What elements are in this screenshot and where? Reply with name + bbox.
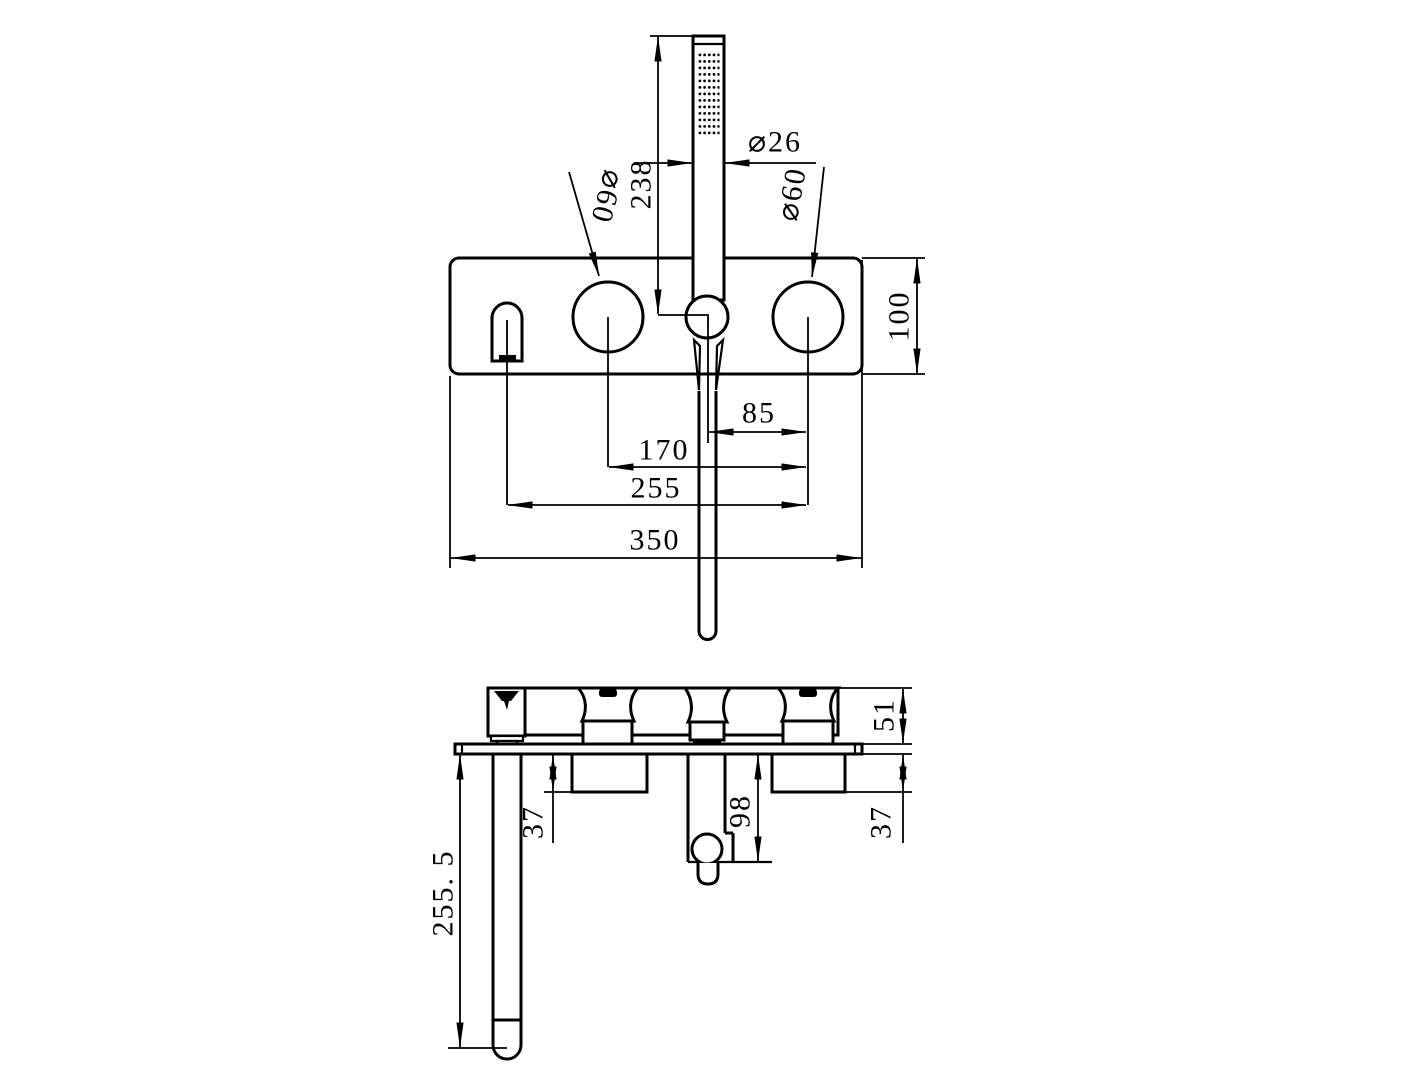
holder-circle xyxy=(686,296,728,338)
spray-face-dots xyxy=(698,52,720,136)
dim-255: 255 xyxy=(508,472,806,506)
right-handle-mark xyxy=(799,689,817,697)
dim-255-5: 255. 5 xyxy=(427,755,461,1047)
elbow-ball-joint xyxy=(692,834,722,864)
dim-37-right: 37 xyxy=(865,755,904,839)
holder-profile xyxy=(685,688,730,722)
dim-98: 98 xyxy=(724,755,759,861)
dim-phi26-label: ⌀26 xyxy=(748,126,802,159)
technical-drawing: 238 ⌀26 ⌀60 ⌀60 100 85 170 255 xyxy=(0,0,1408,1088)
dim-170-label: 170 xyxy=(639,434,690,467)
elbow-hose-connector xyxy=(698,863,718,884)
dim-350-label: 350 xyxy=(630,524,681,557)
profile-view xyxy=(455,688,862,1059)
spout-tube xyxy=(493,754,521,1059)
left-handle-base xyxy=(583,721,632,744)
dim-98-label: 98 xyxy=(724,794,757,828)
dim-350: 350 xyxy=(451,524,861,559)
dim-100-label: 100 xyxy=(883,291,916,342)
holder-base xyxy=(690,722,724,740)
dim-238-label: 238 xyxy=(625,159,658,210)
dim-51: 51 xyxy=(868,689,904,743)
drawing-canvas: 238 ⌀26 ⌀60 ⌀60 100 85 170 255 xyxy=(0,0,1408,1088)
dim-100: 100 xyxy=(883,259,918,373)
dim-255-5-label: 255. 5 xyxy=(427,850,460,937)
dim-37-right-label: 37 xyxy=(865,805,898,839)
dim-85-label: 85 xyxy=(742,397,776,430)
dim-phi60-right-label: ⌀60 xyxy=(771,165,813,224)
dim-phi60-left-label: ⌀60 xyxy=(584,167,630,228)
dim-85: 85 xyxy=(709,397,806,433)
right-handle-base xyxy=(783,721,833,744)
dim-255-label: 255 xyxy=(631,472,682,505)
left-valve-box xyxy=(572,754,647,792)
left-handle-mark xyxy=(599,689,617,697)
dim-37-left-label: 37 xyxy=(517,805,550,839)
right-valve-box xyxy=(772,754,845,792)
dim-51-label: 51 xyxy=(868,698,901,732)
